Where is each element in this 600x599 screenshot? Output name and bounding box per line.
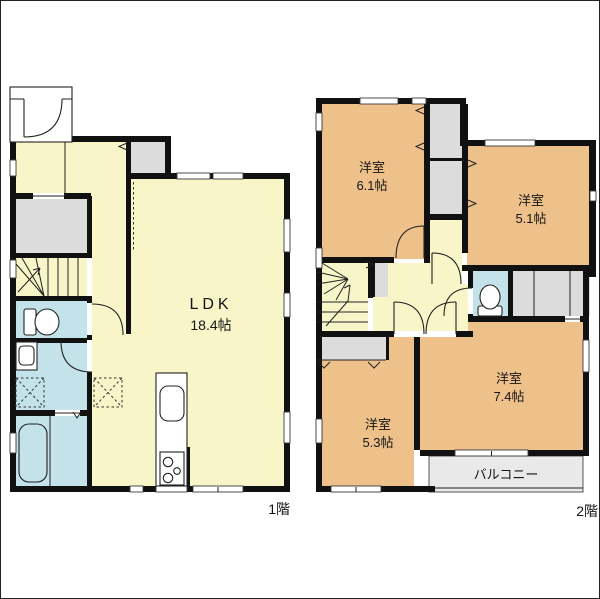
- label-bedroom61-size: 6.1帖: [356, 178, 387, 193]
- window: [284, 219, 290, 252]
- closet-lower: [430, 160, 462, 216]
- window: [130, 486, 143, 492]
- label-bedroom61-name: 洋室: [359, 160, 385, 175]
- label-bedroom53-name: 洋室: [365, 417, 391, 432]
- closet-hall-2f: [374, 261, 388, 297]
- closet-row: [513, 271, 590, 316]
- closet-53: [316, 337, 386, 360]
- window: [284, 412, 290, 443]
- window: [156, 486, 187, 492]
- window: [177, 173, 210, 179]
- window: [10, 433, 16, 453]
- room-stairs-1f: [16, 256, 87, 298]
- floor-2-plan: 洋室 6.1帖 洋室 5.1帖 洋室 7.4帖 洋室 5.3帖 バルコニー 2階: [316, 98, 598, 519]
- window: [284, 293, 290, 317]
- floor-plan-svg: LDK 18.4帖 1階: [0, 0, 600, 599]
- floor-label-1f: 1階: [268, 501, 290, 517]
- label-bedroom53-size: 5.3帖: [362, 435, 393, 450]
- label-bedroom51-name: 洋室: [518, 193, 544, 208]
- room-bedroom-74: [420, 322, 583, 450]
- room-corridor: [92, 196, 126, 486]
- toilet-icon-2f: [478, 285, 502, 316]
- toilet-icon-1f: [24, 309, 59, 335]
- room-corridor-opening: [126, 334, 131, 486]
- entrance-porch: [10, 87, 72, 142]
- closet-upper: [430, 104, 462, 159]
- label-bedroom51-size: 5.1帖: [515, 211, 546, 226]
- kitchen-counter: [156, 373, 187, 486]
- closet-shoe: [16, 199, 87, 253]
- window: [590, 191, 596, 201]
- window: [316, 113, 322, 131]
- window: [10, 260, 16, 278]
- label-bedroom74-size: 7.4帖: [493, 389, 524, 404]
- label-bedroom74-name: 洋室: [496, 371, 522, 386]
- window: [316, 248, 322, 268]
- window: [316, 419, 322, 443]
- window: [360, 98, 398, 104]
- closet-hall: [131, 142, 165, 173]
- window: [213, 173, 243, 179]
- room-entrance-hall: [16, 142, 126, 199]
- label-ldk-name: LDK: [189, 296, 232, 313]
- window: [583, 340, 589, 372]
- label-balcony: バルコニー: [474, 467, 539, 482]
- floor-plan-image: LDK 18.4帖 1階: [0, 0, 600, 599]
- floor-label-2f: 2階: [576, 503, 598, 519]
- window: [412, 98, 426, 104]
- window: [10, 160, 16, 176]
- window: [485, 140, 535, 146]
- washbasin-icon: [16, 342, 37, 370]
- label-ldk-size: 18.4帖: [190, 317, 231, 333]
